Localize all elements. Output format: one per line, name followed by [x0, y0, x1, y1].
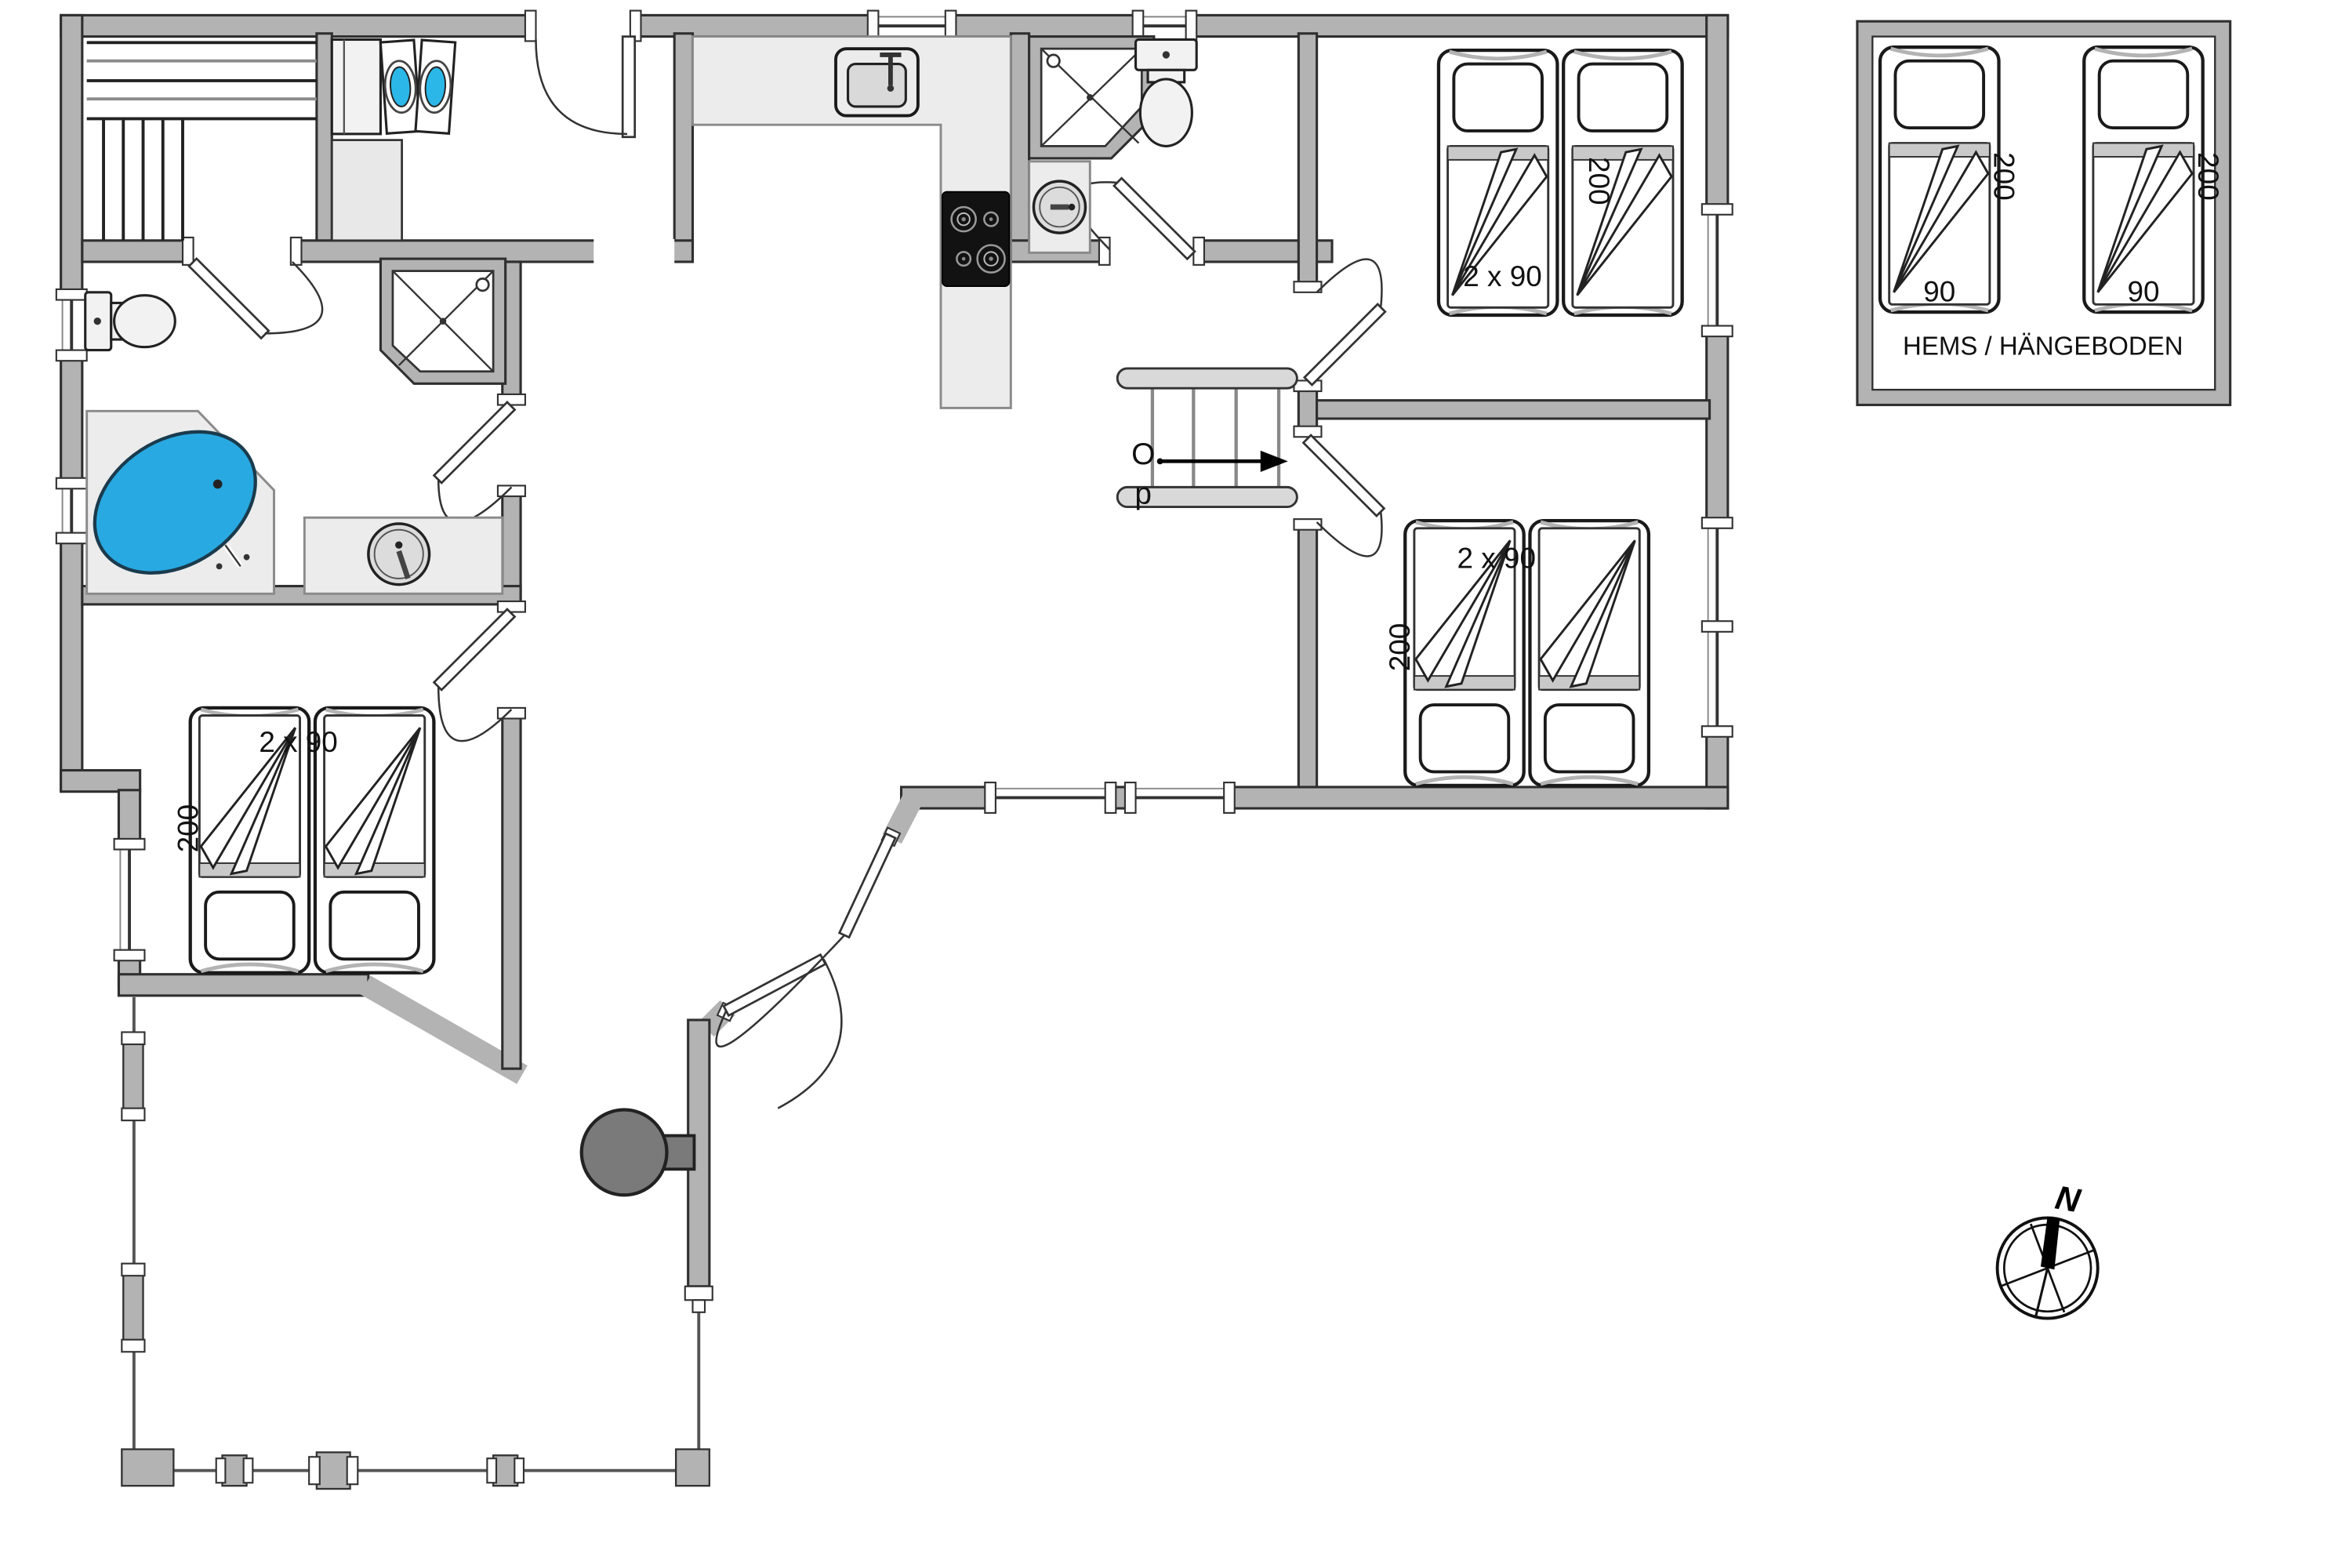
loft-bed1-width-label: 90 — [1923, 275, 1955, 307]
loft-bed1-length-label: 200 — [1988, 152, 2020, 201]
kitchen-sink — [836, 49, 918, 115]
bathroom-small — [1029, 37, 1197, 253]
terrace — [122, 997, 712, 1489]
bedroom-3: 2 x 90 200 — [172, 708, 434, 973]
single-bed — [1880, 47, 1998, 312]
compass-north-label: N — [2053, 1179, 2084, 1221]
bathroom-sink — [304, 517, 502, 593]
terrace-corner-post — [122, 1450, 173, 1486]
washing-machine-1 — [380, 40, 420, 133]
outdoor-grill — [582, 1110, 695, 1196]
stairs-up-label-line2: p — [1134, 477, 1152, 511]
terrace-double-door — [717, 828, 900, 1109]
handrail — [1117, 368, 1297, 388]
bathroom-main — [68, 259, 506, 602]
bed-length-label: 200 — [1583, 157, 1615, 205]
stairs-up-label-line1: O — [1131, 437, 1155, 471]
loft-bed2-length-label: 200 — [2192, 152, 2224, 201]
cooktop — [942, 192, 1009, 286]
single-bed — [1530, 521, 1648, 786]
bed-size-label: 2 x 90 — [1457, 542, 1536, 574]
bed-size-label: 2 x 90 — [259, 726, 337, 758]
bedroom-2: 2 x 90 200 — [1384, 521, 1649, 786]
shower-head-icon — [1047, 55, 1060, 67]
bedroom-1: 2 x 90 200 — [1439, 50, 1682, 315]
small-bath-sink — [1029, 162, 1091, 253]
stairs: O p — [1117, 368, 1297, 511]
loft-bed2-width-label: 90 — [2127, 275, 2159, 307]
corner-shower — [380, 259, 505, 383]
toilet — [85, 292, 176, 350]
utility-room — [332, 39, 455, 240]
chest-freezer — [332, 140, 401, 241]
cabinet — [332, 39, 380, 133]
corner-bathtub — [68, 403, 281, 602]
bed-length-label: 200 — [1384, 623, 1416, 672]
single-bed — [2084, 47, 2202, 312]
bed-size-label: 2 x 90 — [1463, 260, 1541, 292]
kitchen — [692, 37, 1011, 408]
grill-icon — [582, 1110, 667, 1196]
single-bed — [1563, 50, 1682, 315]
compass-rose: N — [1998, 1179, 2098, 1319]
terrace-corner-post — [676, 1450, 710, 1486]
bed-length-label: 200 — [172, 804, 204, 853]
washing-machine-2 — [416, 40, 456, 133]
loft-hems: 200 90 200 90 HEMS / HÄNGEBODEN — [1857, 21, 2230, 405]
floor-plan: O p 2 x 90 200 2 x 90 200 2 x 90 200 200… — [0, 0, 2352, 1568]
loft-caption: HEMS / HÄNGEBODEN — [1903, 331, 2183, 360]
sauna — [87, 42, 317, 240]
shower-head-icon — [477, 278, 489, 291]
toilet-2 — [1136, 39, 1197, 146]
